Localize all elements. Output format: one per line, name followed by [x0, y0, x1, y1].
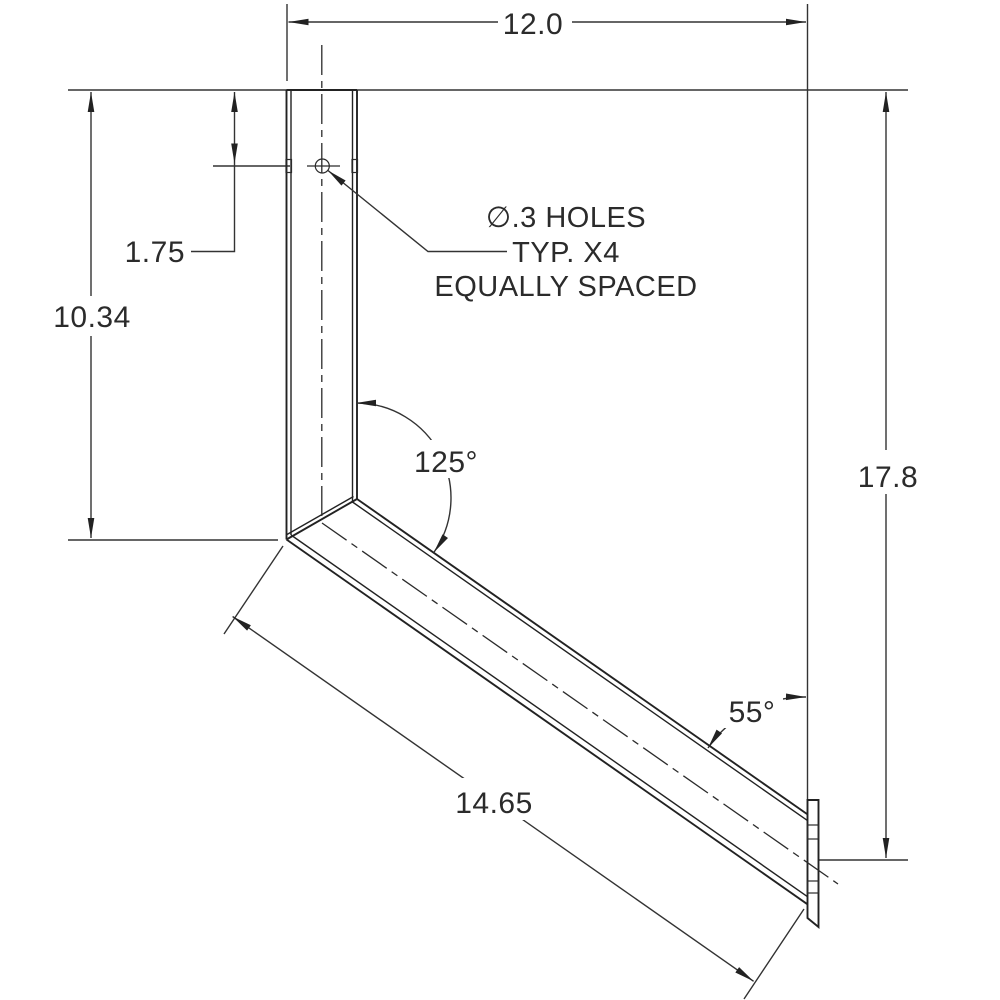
drawing-background — [0, 0, 1000, 1000]
dim-total-height-label: 17.8 — [858, 461, 918, 494]
dim-hole-offset-label: 1.75 — [125, 236, 185, 269]
dim-left-height-label: 10.34 — [53, 301, 131, 334]
hole-note-line2: TYP. X4 — [512, 237, 620, 269]
dim-width-label: 12.0 — [503, 8, 563, 41]
dim-end-angle-label: 55° — [729, 696, 776, 729]
drawing-canvas: 12.0 10.34 1.75 17.8 14.65 125° 55° ∅.3 … — [0, 0, 1000, 1000]
hole-note-line1: ∅.3 HOLES — [486, 202, 646, 234]
hole-note-line3: EQUALLY SPACED — [434, 271, 697, 303]
dim-bend-angle-label: 125° — [414, 446, 478, 479]
dim-diagonal-length-label: 14.65 — [455, 787, 533, 820]
technical-drawing: 12.0 10.34 1.75 17.8 14.65 125° 55° ∅.3 … — [0, 0, 1000, 1000]
